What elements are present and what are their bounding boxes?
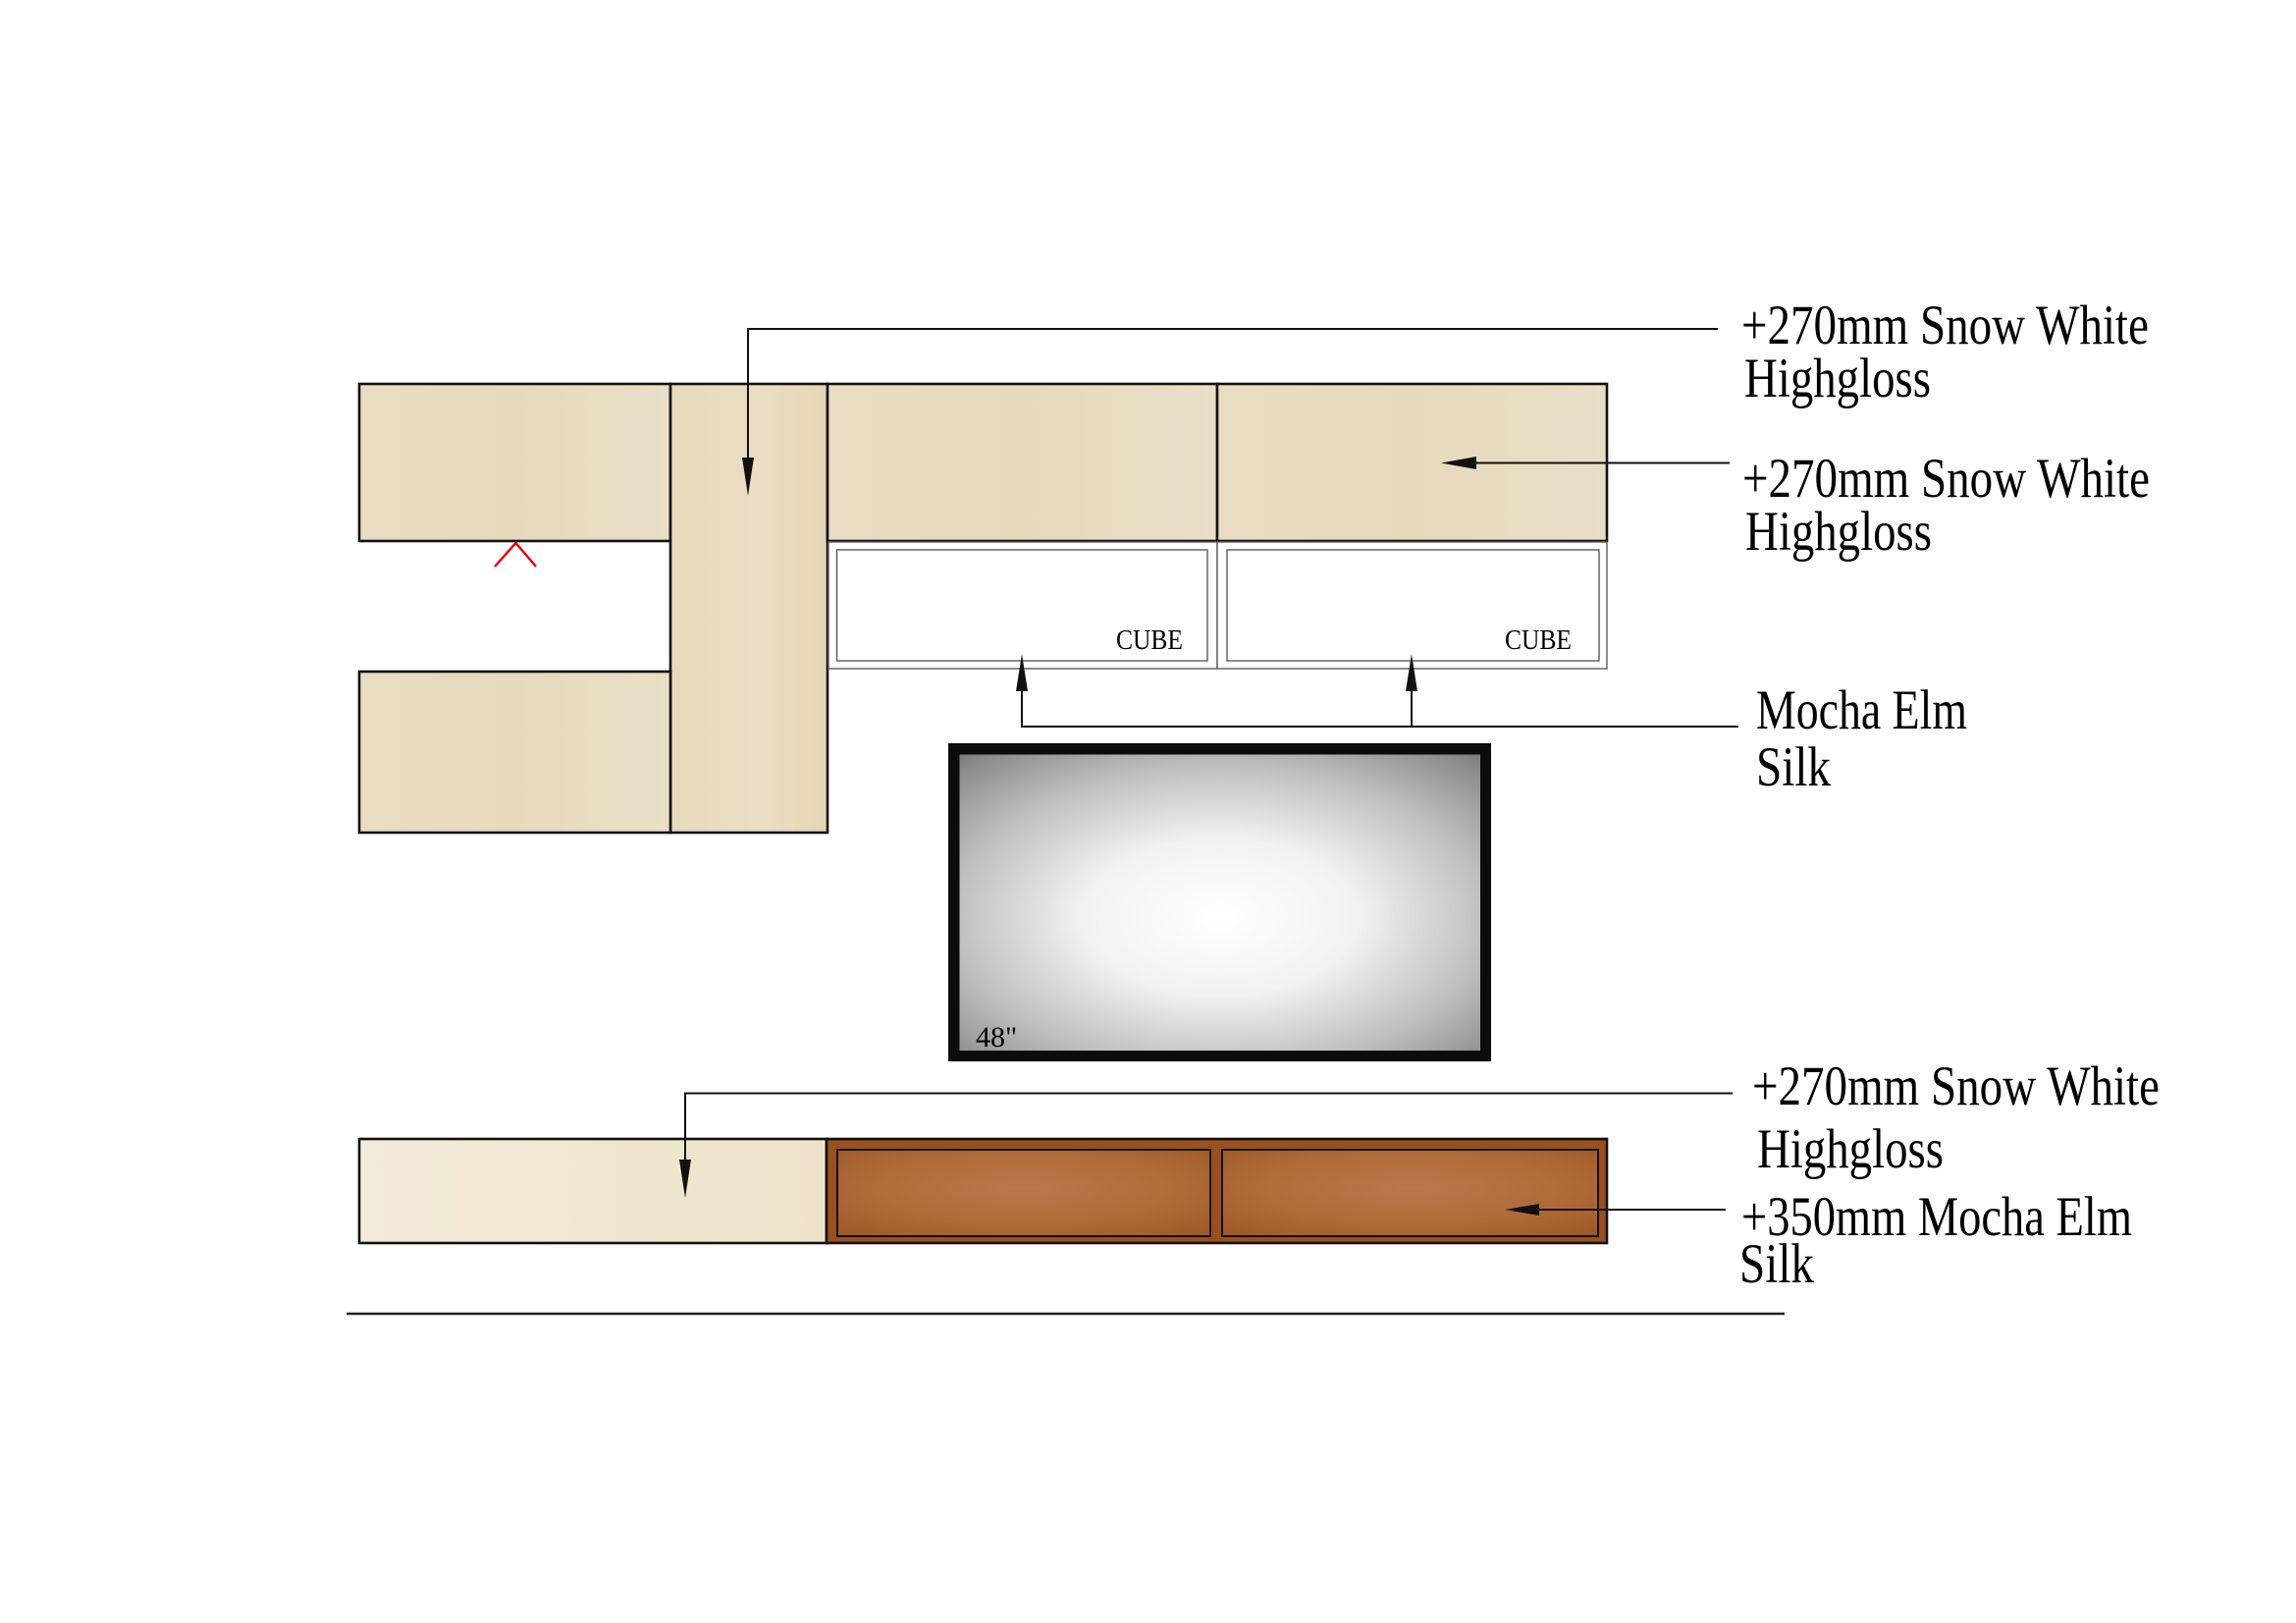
svg-text:CUBE: CUBE: [1116, 624, 1183, 656]
svg-text:Silk: Silk: [1756, 736, 1831, 798]
svg-text:+270mm Snow White: +270mm Snow White: [1752, 1055, 2160, 1117]
svg-text:Highgloss: Highgloss: [1757, 1118, 1944, 1180]
svg-text:Highgloss: Highgloss: [1744, 348, 1931, 409]
svg-text:48": 48": [976, 1021, 1017, 1054]
svg-text:Mocha Elm: Mocha Elm: [1756, 679, 1967, 741]
svg-text:CUBE: CUBE: [1505, 624, 1572, 656]
svg-text:Highgloss: Highgloss: [1745, 501, 1932, 563]
svg-text:Silk: Silk: [1739, 1233, 1814, 1295]
